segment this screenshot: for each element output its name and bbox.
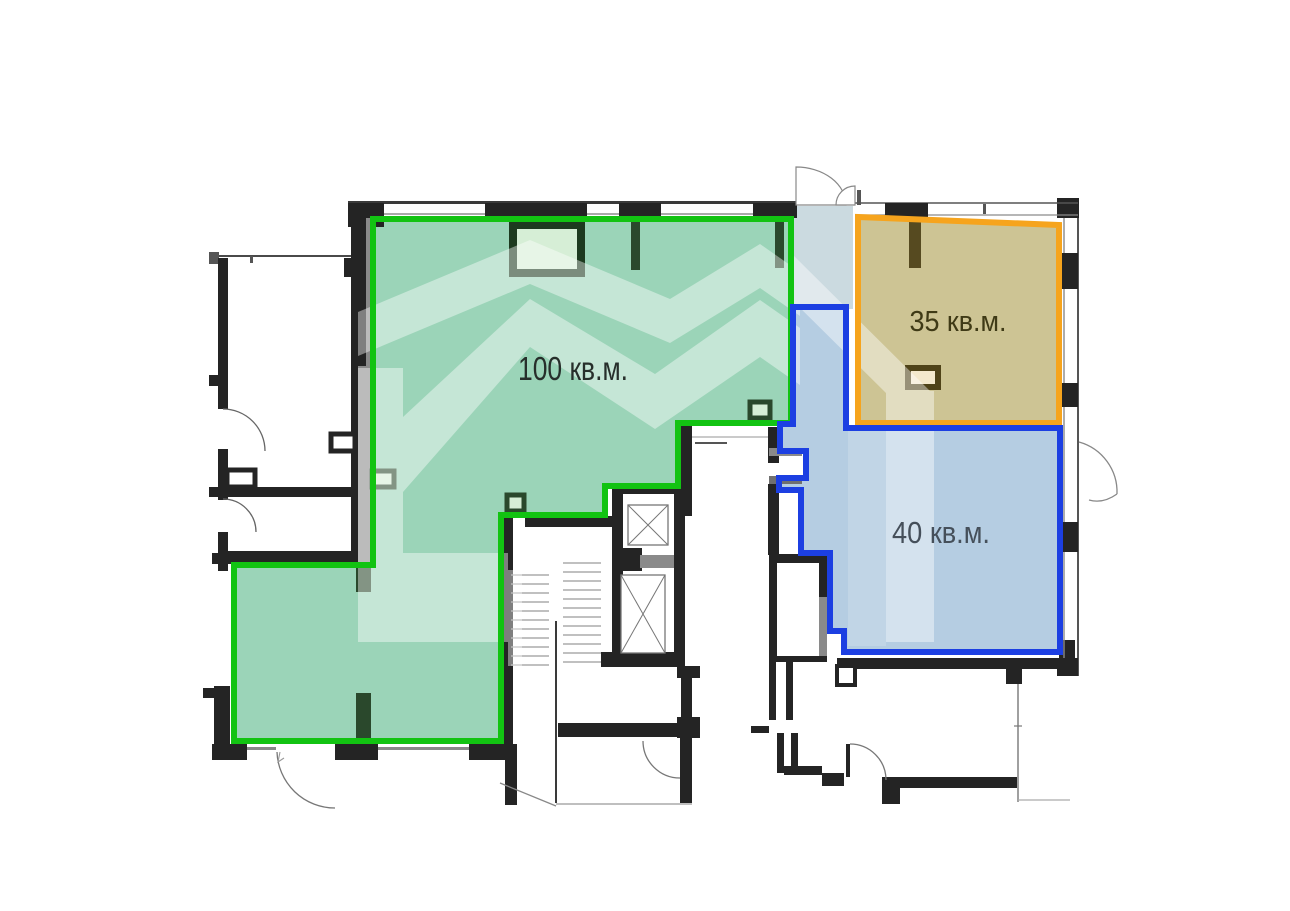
svg-text:100 кв.м.: 100 кв.м. (518, 350, 628, 387)
svg-text:40 кв.м.: 40 кв.м. (892, 515, 990, 550)
svg-text:35 кв.м.: 35 кв.м. (910, 306, 1007, 338)
